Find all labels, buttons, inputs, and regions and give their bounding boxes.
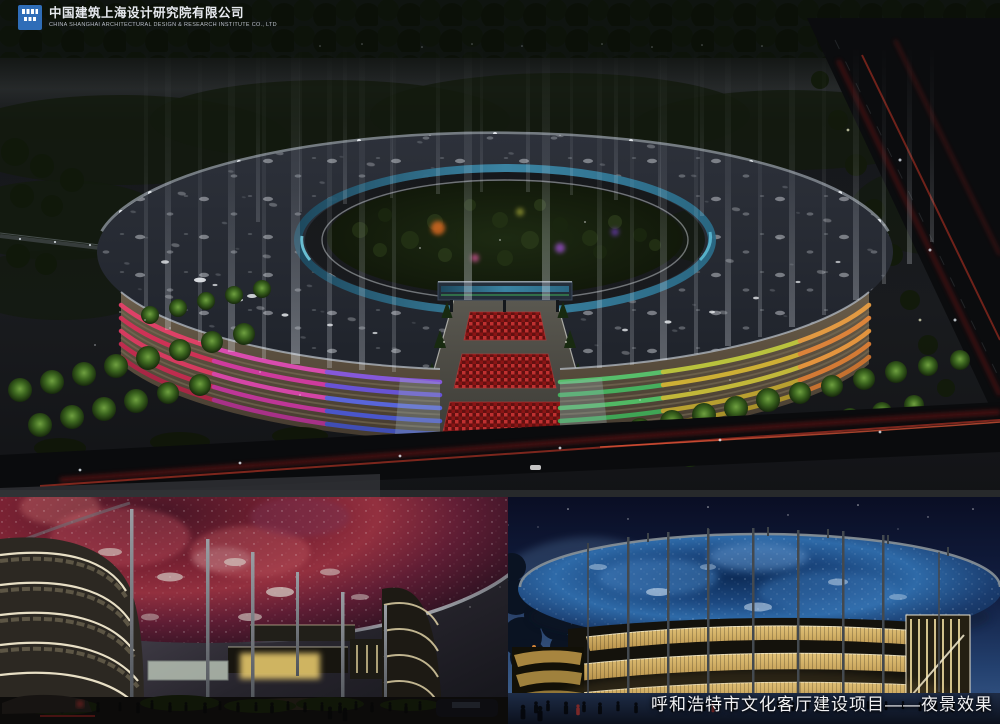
logo-glyph-bar — [24, 17, 37, 21]
logo-glyph-bar — [22, 9, 38, 14]
nebula-scene — [0, 497, 508, 724]
company-logo-block: 中国建筑上海设计研究院有限公司 CHINA SHANGHAI ARCHITECT… — [18, 5, 277, 30]
company-logo-icon — [18, 5, 42, 30]
aerial-night-render: 中国建筑上海设计研究院有限公司 CHINA SHANGHAI ARCHITECT… — [0, 0, 1000, 497]
aerial-scene — [0, 0, 1000, 497]
company-name-zh: 中国建筑上海设计研究院有限公司 — [49, 6, 277, 20]
closeup-render-nebula-canopy — [0, 497, 508, 724]
left-lobby-glass — [395, 378, 440, 438]
courtyard-garden — [327, 181, 683, 295]
project-caption: 呼和浩特市文化客厅建设项目——夜景效果 — [651, 690, 993, 715]
company-name-en: CHINA SHANGHAI ARCHITECTURAL DESIGN & RE… — [49, 22, 277, 28]
presentation-board: 中国建筑上海设计研究院有限公司 CHINA SHANGHAI ARCHITECT… — [0, 0, 1000, 724]
lit-media-screen — [148, 661, 228, 680]
car — [530, 465, 541, 470]
car-right — [436, 699, 498, 717]
